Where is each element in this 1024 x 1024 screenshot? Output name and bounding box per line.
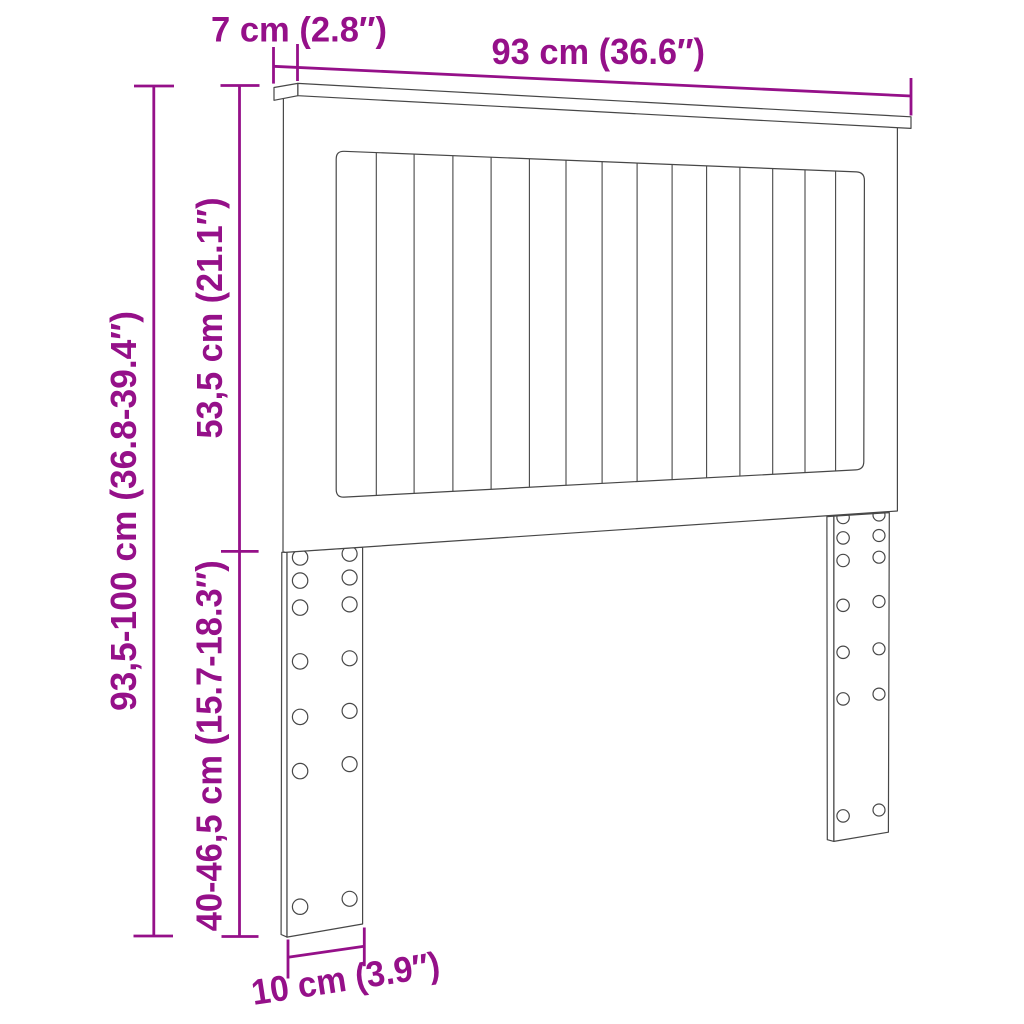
svg-text:93 cm (36.6″): 93 cm (36.6″)	[492, 31, 706, 72]
svg-text:40-46,5 cm (15.7-18.3″): 40-46,5 cm (15.7-18.3″)	[189, 560, 230, 931]
svg-text:53,5 cm (21.1″): 53,5 cm (21.1″)	[189, 198, 230, 439]
svg-text:93,5-100 cm (36.8-39.4″): 93,5-100 cm (36.8-39.4″)	[103, 311, 144, 711]
svg-text:7 cm (2.8″): 7 cm (2.8″)	[211, 10, 387, 49]
